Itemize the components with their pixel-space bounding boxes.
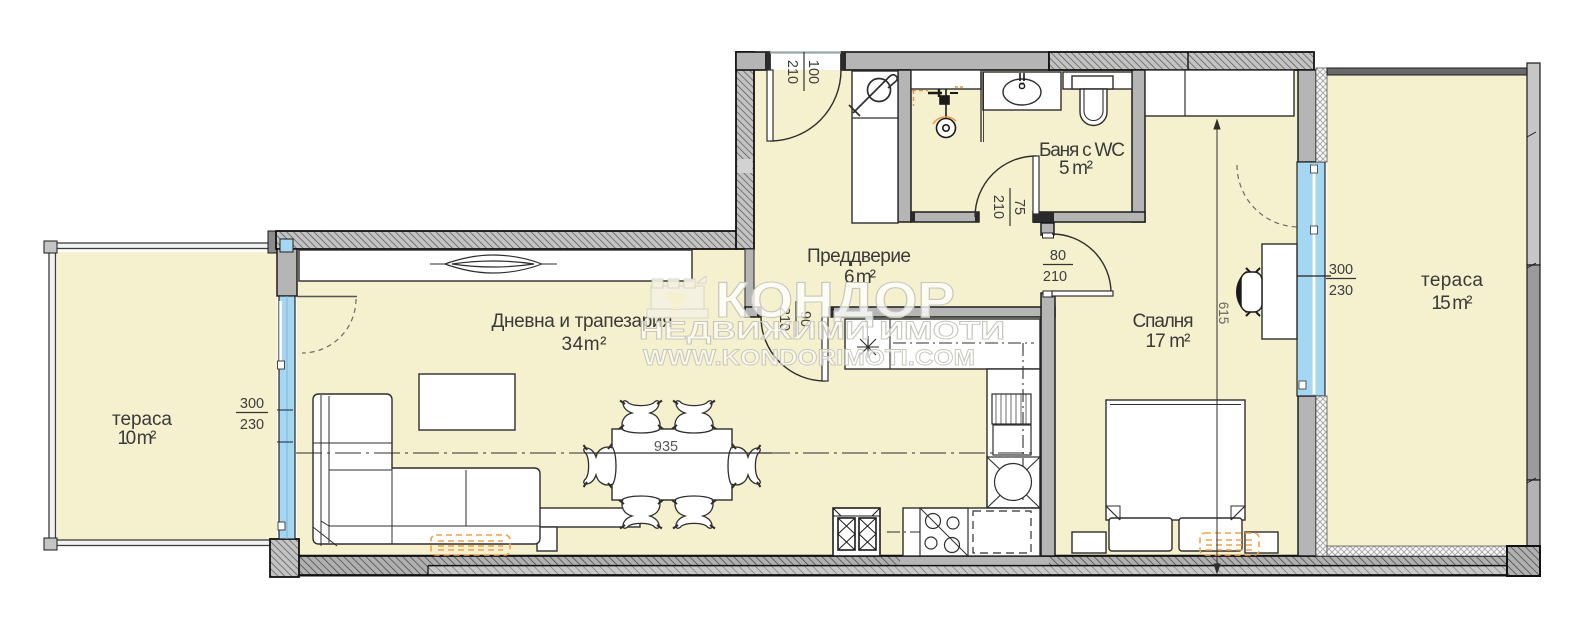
svg-text:210: 210 xyxy=(1043,269,1067,285)
svg-text:Преддверие: Преддверие xyxy=(807,246,911,267)
svg-text:100: 100 xyxy=(805,60,821,84)
svg-text:615: 615 xyxy=(1216,302,1231,325)
svg-text:5 m²: 5 m² xyxy=(1059,158,1093,179)
svg-text:17 m²: 17 m² xyxy=(1146,331,1191,352)
svg-text:10 m²: 10 m² xyxy=(118,428,157,449)
svg-text:230: 230 xyxy=(240,417,264,433)
svg-text:210: 210 xyxy=(990,195,1006,219)
svg-text:тераса: тераса xyxy=(112,409,172,430)
svg-text:75: 75 xyxy=(1011,199,1027,215)
svg-text:Спалня: Спалня xyxy=(1133,311,1194,332)
svg-text:935: 935 xyxy=(654,439,678,455)
svg-text:WWW.KONDORIMOTI.COM: WWW.KONDORIMOTI.COM xyxy=(643,345,975,370)
svg-text:300: 300 xyxy=(1329,262,1353,278)
svg-text:210: 210 xyxy=(784,60,800,84)
svg-text:34m²: 34m² xyxy=(562,334,607,355)
svg-text:300: 300 xyxy=(240,396,264,412)
svg-text:15 m²: 15 m² xyxy=(1432,293,1473,314)
svg-text:тераса: тераса xyxy=(1421,270,1483,291)
svg-text:230: 230 xyxy=(1329,283,1353,299)
svg-text:НЕДВИЖИМИ ИМОТИ: НЕДВИЖИМИ ИМОТИ xyxy=(639,317,1005,345)
svg-text:80: 80 xyxy=(1050,248,1066,264)
